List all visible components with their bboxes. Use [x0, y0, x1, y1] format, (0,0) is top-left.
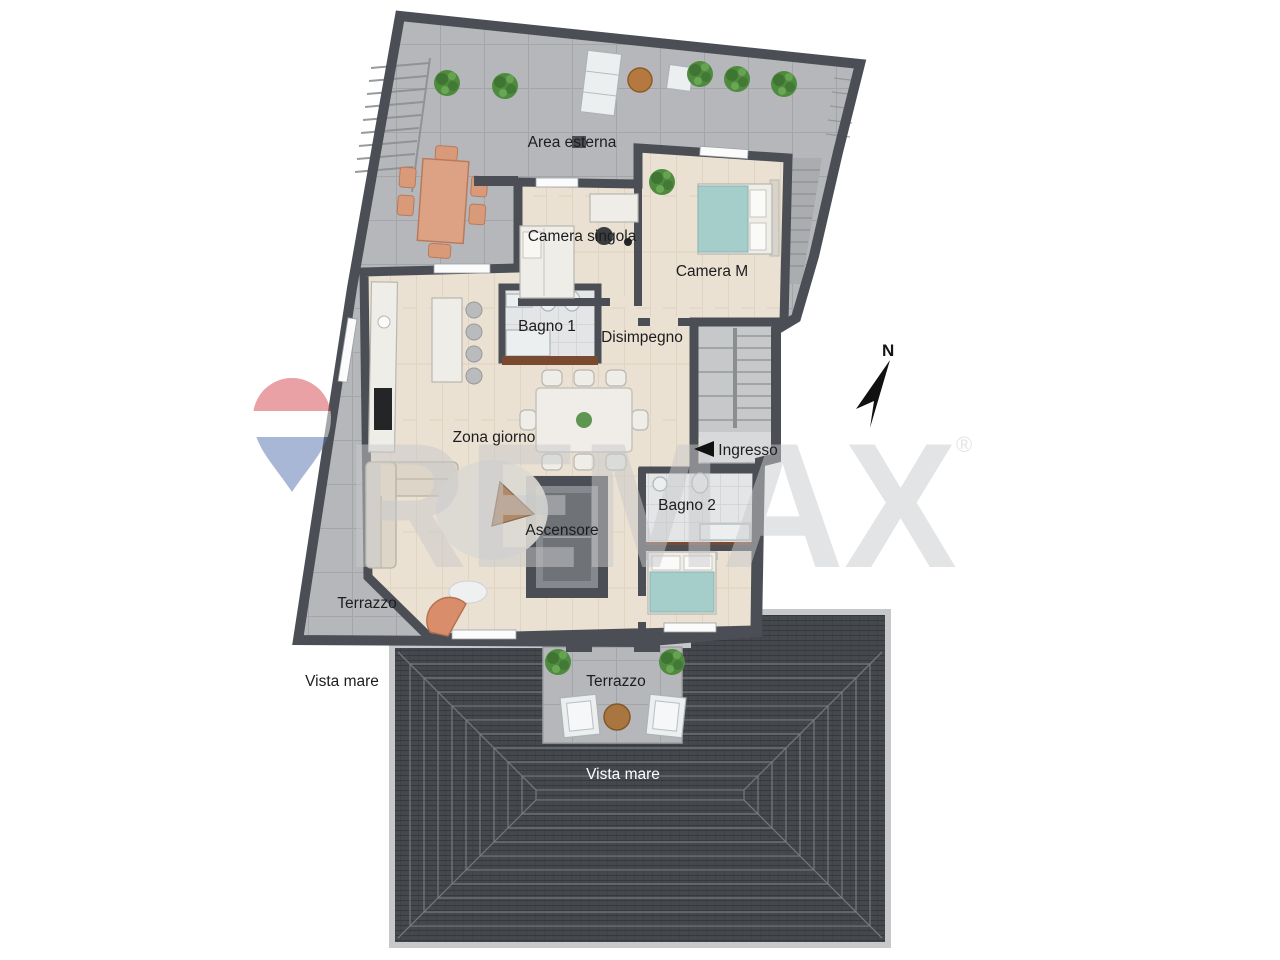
watermark-brand-text: REMAX: [345, 406, 957, 605]
label-terrazzo-south: Terrazzo: [586, 673, 645, 690]
label-area-esterna: Area esterna: [528, 134, 617, 151]
plant-icon: [492, 73, 518, 99]
label-disimpegno: Disimpegno: [601, 329, 683, 346]
round-table: [628, 68, 652, 92]
plant-icon: [659, 649, 685, 675]
remax-watermark: REMAX ®: [248, 374, 972, 605]
plant-icon: [649, 169, 675, 195]
plant-icon: [687, 61, 713, 87]
label-ascensore: Ascensore: [525, 522, 598, 539]
kitchen-island: [432, 298, 462, 382]
desk: [590, 194, 638, 222]
plant-icon: [724, 66, 750, 92]
label-vista-mare-west: Vista mare: [305, 673, 379, 690]
plant-icon: [434, 70, 460, 96]
label-bagno-1: Bagno 1: [518, 318, 576, 335]
label-ingresso: Ingresso: [718, 442, 777, 459]
door-threshold: [502, 356, 598, 365]
floorplan-canvas: REMAX ® N Area esterna Camera singola Ca…: [0, 0, 1280, 960]
watermark-registered-mark: ®: [956, 432, 972, 457]
south-terrace: [543, 643, 686, 743]
compass-north-label: N: [882, 341, 894, 360]
terrace-ottoman: [604, 704, 630, 730]
label-terrazzo-west: Terrazzo: [337, 595, 396, 612]
label-zona-giorno: Zona giorno: [453, 429, 536, 446]
label-bagno-2: Bagno 2: [658, 497, 716, 514]
plant-icon: [771, 71, 797, 97]
label-vista-mare-south: Vista mare: [586, 766, 660, 783]
plant-icon: [545, 649, 571, 675]
floorplan-drawing: REMAX ® N Area esterna Camera singola Ca…: [0, 0, 1280, 960]
label-camera-singola: Camera singola: [528, 228, 637, 245]
label-camera-m: Camera M: [676, 263, 748, 280]
